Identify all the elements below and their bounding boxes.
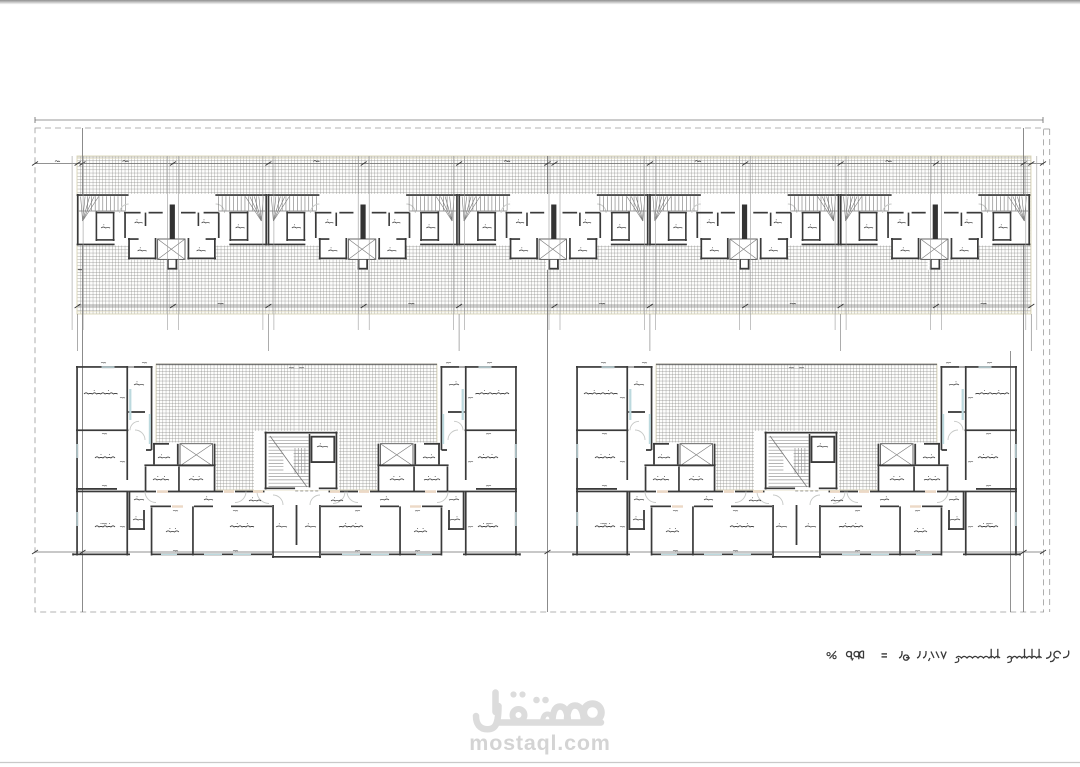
svg-text:mostaql.com: mostaql.com — [469, 731, 610, 755]
